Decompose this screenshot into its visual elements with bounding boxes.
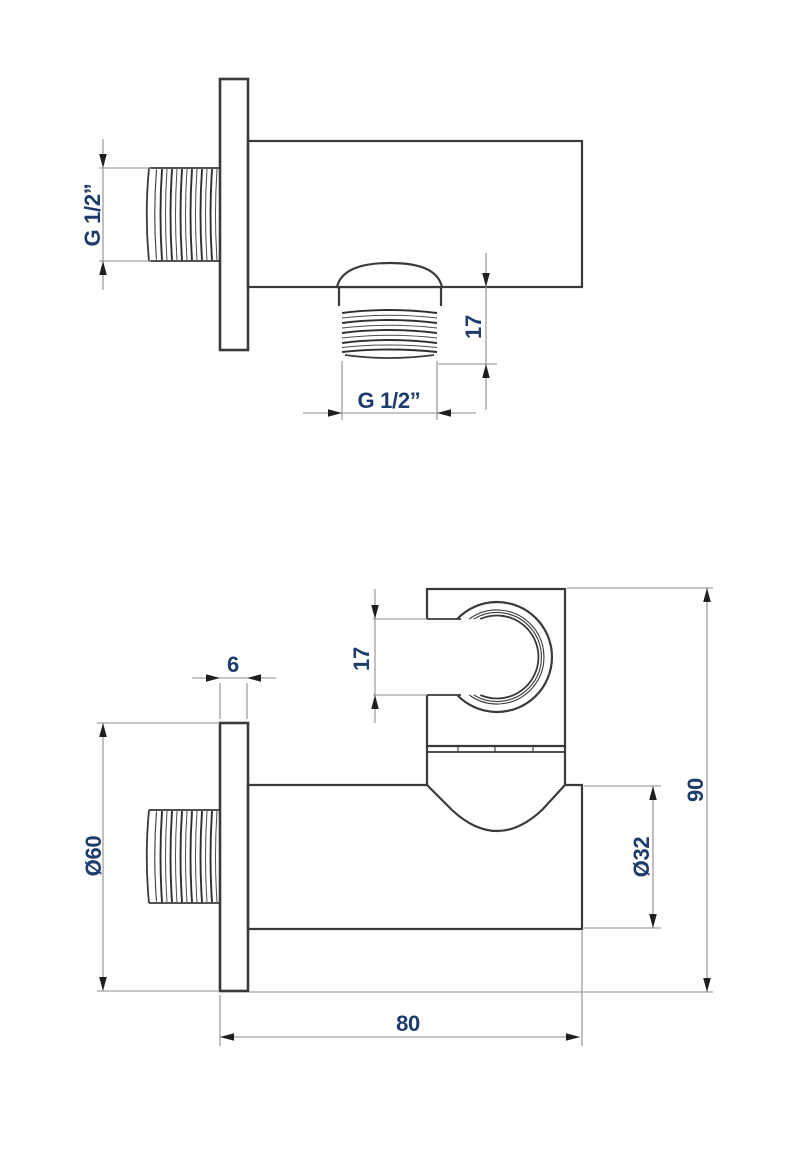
arrowhead xyxy=(220,1033,234,1041)
arrowhead xyxy=(703,978,711,992)
inlet-pipe-cap-line xyxy=(155,170,157,260)
dim-label-plate-diameter: Ø60 xyxy=(81,836,106,877)
outlet-thread-upper xyxy=(337,263,442,358)
wall-plate-upper xyxy=(220,79,248,350)
arrowhead xyxy=(99,154,107,168)
arrowhead xyxy=(703,588,711,602)
dimension-overall-length: 80 xyxy=(220,931,582,1046)
clip-arc-inner xyxy=(480,616,538,699)
dim-label-inlet-thread: G 1/2” xyxy=(80,183,105,246)
dimension-body-diameter: Ø32 xyxy=(584,786,661,928)
arrowhead xyxy=(649,914,657,928)
dim-label-plate-thickness: 6 xyxy=(227,652,239,677)
arrowhead xyxy=(371,605,379,619)
inlet-pipe-cap-line xyxy=(155,812,157,902)
arrowhead xyxy=(247,674,261,682)
dim-label-overall-length: 80 xyxy=(396,1011,420,1036)
arrowhead xyxy=(371,695,379,709)
arrowhead xyxy=(99,261,107,275)
outlet-collar xyxy=(339,287,441,306)
clip-arc-mid xyxy=(474,613,542,702)
dim-label-outlet-thread: G 1/2” xyxy=(357,388,420,413)
handset-clip-arcs xyxy=(457,602,552,712)
inlet-thread-upper xyxy=(147,168,220,261)
dimension-plate-thickness: 6 xyxy=(192,652,276,719)
dimension-outlet-length: 17 xyxy=(438,253,497,410)
dimension-inlet-thread: G 1/2” xyxy=(80,139,151,290)
dimension-outlet-thread: G 1/2” xyxy=(303,361,476,420)
dim-label-overall-height: 90 xyxy=(683,778,708,802)
inlet-pipe-outline xyxy=(147,168,220,261)
dimension-plate-diameter: Ø60 xyxy=(81,723,218,991)
outlet-thread-tip xyxy=(345,355,434,358)
wall-plate-lower xyxy=(220,723,248,991)
arrowhead xyxy=(482,273,490,287)
outlet-dome xyxy=(337,263,442,287)
arrowhead xyxy=(99,977,107,991)
dimension-lines xyxy=(99,139,151,290)
arrowhead xyxy=(437,409,451,417)
arrowhead xyxy=(206,674,220,682)
clip-arc-mid xyxy=(469,610,544,704)
dim-label-body-diameter: Ø32 xyxy=(629,837,654,878)
arrowhead xyxy=(99,723,107,737)
shower-elbow-technical-drawing: G 1/2” G 1/2” 17 xyxy=(0,0,800,1166)
upper-view-side-profile: G 1/2” G 1/2” 17 xyxy=(80,79,582,420)
arrowhead xyxy=(328,409,342,417)
cone-joint xyxy=(427,785,565,831)
arrowhead xyxy=(566,1033,580,1041)
holder-block xyxy=(427,589,565,831)
dimension-clip-opening: 17 xyxy=(349,589,427,723)
dim-label-clip-opening: 17 xyxy=(349,647,374,671)
holder-notch-edges xyxy=(427,619,461,695)
arrowhead xyxy=(649,786,657,800)
dimension-lines xyxy=(192,678,276,719)
dim-label-outlet-length: 17 xyxy=(461,315,486,339)
arrowhead xyxy=(482,364,490,378)
dimension-lines xyxy=(373,589,427,723)
inlet-pipe-outline xyxy=(147,810,220,903)
inlet-thread-lower xyxy=(147,810,220,903)
lower-view-front: 6 17 Ø60 Ø32 90 xyxy=(81,588,713,1046)
technical-drawing-page: G 1/2” G 1/2” 17 xyxy=(0,0,800,1166)
